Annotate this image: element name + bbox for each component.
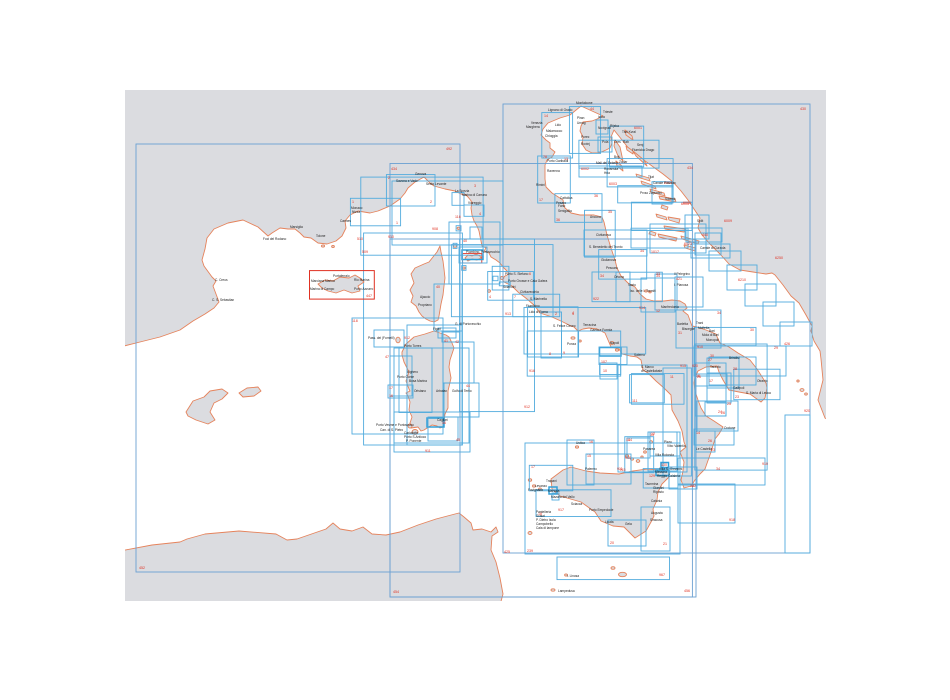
svg-text:6006: 6006 [683, 201, 691, 205]
svg-text:34: 34 [717, 311, 721, 315]
svg-text:3: 3 [474, 184, 476, 188]
svg-text:13: 13 [650, 433, 654, 437]
svg-text:Sciacca: Sciacca [571, 502, 582, 506]
svg-text:Porec: Porec [581, 135, 590, 139]
svg-text:Lignano di Grado: Lignano di Grado [548, 108, 573, 112]
svg-text:6002: 6002 [581, 167, 589, 171]
svg-text:Fiumicka Drago: Fiumicka Drago [632, 148, 655, 152]
svg-text:10: 10 [603, 369, 607, 373]
svg-text:920: 920 [804, 409, 810, 413]
svg-text:11: 11 [670, 375, 674, 379]
svg-text:Canale Pasman: Canale Pasman [653, 181, 676, 185]
svg-text:26: 26 [708, 439, 712, 443]
svg-text:Mali del Sebeto: Mali del Sebeto [596, 161, 618, 165]
svg-text:Izola: Izola [598, 115, 605, 119]
svg-text:910: 910 [388, 235, 394, 239]
svg-text:40: 40 [436, 285, 440, 289]
svg-text:492: 492 [446, 147, 452, 151]
svg-text:Canale di Curzola: Canale di Curzola [700, 246, 726, 250]
svg-text:36: 36 [556, 218, 560, 222]
svg-text:Marina di Campo: Marina di Campo [310, 287, 334, 291]
svg-text:23: 23 [735, 395, 739, 399]
svg-text:Sesto Levante: Sesto Levante [426, 182, 447, 186]
svg-text:510: 510 [357, 237, 363, 241]
svg-text:Foci del Rodano: Foci del Rodano [263, 237, 286, 241]
svg-text:44: 44 [590, 107, 594, 111]
svg-text:I. Pianosa: I. Pianosa [674, 283, 688, 287]
svg-text:20: 20 [610, 541, 614, 545]
svg-text:Cala di lampone: Cala di lampone [536, 526, 559, 530]
svg-text:Portoferraio: Portoferraio [333, 274, 350, 278]
svg-text:47: 47 [385, 355, 389, 359]
svg-text:Golfo di Tertio: Golfo di Tertio [452, 389, 472, 393]
svg-text:26: 26 [697, 375, 701, 379]
svg-text:27: 27 [708, 358, 712, 362]
svg-text:Palermo: Palermo [585, 467, 597, 471]
svg-text:Split: Split [697, 219, 703, 223]
svg-text:452: 452 [139, 566, 145, 570]
svg-text:Pass. dei (Fornelli): Pass. dei (Fornelli) [368, 336, 395, 340]
svg-text:Tolone: Tolone [316, 234, 326, 238]
svg-text:17: 17 [531, 465, 535, 469]
svg-text:17: 17 [539, 198, 543, 202]
svg-text:Bolj: Bolj [614, 155, 620, 159]
svg-text:41: 41 [444, 339, 448, 343]
svg-text:116: 116 [455, 215, 461, 219]
svg-text:Malamocco: Malamocco [546, 129, 563, 133]
svg-text:Sibenik: Sibenik [665, 197, 676, 201]
svg-text:Taranto: Taranto [710, 365, 721, 369]
svg-text:911: 911 [425, 449, 431, 453]
svg-text:908: 908 [432, 227, 438, 231]
svg-text:Lido: Lido [555, 123, 561, 127]
svg-text:14: 14 [544, 114, 548, 118]
svg-text:S. Benedetto del Tronto: S. Benedetto del Tronto [589, 245, 623, 249]
svg-text:910: 910 [697, 345, 703, 349]
svg-text:Riposto: Riposto [653, 490, 664, 494]
svg-text:34: 34 [656, 274, 660, 278]
svg-text:Porto Grosse e Cala Galera: Porto Grosse e Cala Galera [508, 279, 548, 283]
svg-text:Cattolica: Cattolica [560, 196, 573, 200]
svg-text:S. Maria di Leuca: S. Maria di Leuca [746, 391, 771, 395]
svg-text:Ancona: Ancona [590, 215, 601, 219]
svg-text:425: 425 [504, 550, 510, 554]
svg-text:Genova: Genova [415, 172, 426, 176]
svg-text:Zadar: Zadar [619, 160, 628, 164]
svg-text:I. Linosa: I. Linosa [567, 574, 579, 578]
svg-text:Ustica: Ustica [576, 441, 585, 445]
svg-text:Fiumicino: Fiumicino [526, 304, 540, 308]
svg-text:Civitanova: Civitanova [596, 233, 611, 237]
svg-text:910: 910 [625, 456, 631, 460]
svg-text:Piombino, Portovecchio: Piombino, Portovecchio [466, 250, 500, 254]
svg-text:239: 239 [527, 549, 533, 553]
svg-text:Vibo Valentia: Vibo Valentia [667, 444, 686, 448]
svg-text:Terracina: Terracina [583, 323, 596, 327]
svg-text:Trieste: Trieste [603, 110, 613, 114]
svg-text:Figari: Figari [433, 327, 441, 331]
svg-text:111: 111 [632, 399, 637, 403]
svg-text:922: 922 [593, 297, 599, 301]
svg-text:421: 421 [676, 277, 682, 281]
svg-text:430: 430 [800, 107, 806, 111]
svg-text:Viareggio: Viareggio [468, 201, 482, 205]
svg-text:17: 17 [709, 379, 713, 383]
svg-text:16: 16 [389, 394, 393, 398]
svg-text:2: 2 [555, 312, 557, 316]
svg-text:Alghero: Alghero [407, 370, 418, 374]
svg-text:Civitavecchia: Civitavecchia [520, 290, 539, 294]
svg-text:Salerno: Salerno [634, 353, 645, 357]
svg-text:8: 8 [549, 352, 551, 356]
svg-text:34: 34 [640, 249, 644, 253]
svg-text:Tijat: Tijat [648, 175, 654, 179]
svg-text:Cannes: Cannes [340, 219, 351, 223]
svg-text:Hria: Hria [604, 171, 610, 175]
svg-text:Monopoli: Monopoli [706, 338, 719, 342]
svg-text:910: 910 [762, 462, 768, 466]
svg-text:12: 12 [656, 309, 660, 313]
svg-text:118: 118 [352, 319, 358, 323]
svg-text:914: 914 [639, 306, 645, 310]
svg-text:Marina di Carrara: Marina di Carrara [462, 193, 487, 197]
svg-text:Reggio Calabria: Reggio Calabria [657, 474, 680, 478]
svg-text:Marsala: Marsala [548, 489, 560, 493]
svg-text:Rab: Rab [623, 140, 629, 144]
svg-text:Ajaccio: Ajaccio [420, 295, 431, 299]
svg-text:917: 917 [558, 508, 564, 512]
svg-text:26: 26 [721, 411, 725, 415]
svg-text:967: 967 [659, 573, 665, 577]
svg-text:29: 29 [774, 346, 778, 350]
svg-text:1: 1 [396, 221, 398, 225]
svg-text:Gallipoli: Gallipoli [733, 386, 745, 390]
svg-text:4: 4 [572, 312, 574, 316]
svg-text:6009: 6009 [724, 219, 732, 223]
svg-text:Molfetta: Molfetta [698, 326, 710, 330]
svg-text:Siracusa: Siracusa [650, 518, 663, 522]
svg-text:918: 918 [729, 518, 735, 522]
svg-text:28: 28 [733, 367, 737, 371]
svg-text:44: 44 [466, 384, 470, 388]
svg-text:Marsiglia: Marsiglia [290, 225, 303, 229]
svg-text:Rovinj: Rovinj [581, 142, 590, 146]
svg-text:Can. di S. Pietro: Can. di S. Pietro [380, 428, 403, 432]
svg-text:Ortona: Ortona [614, 275, 624, 279]
svg-text:Monfalcone: Monfalcone [576, 101, 593, 105]
svg-text:Giulianova: Giulianova [601, 258, 616, 262]
svg-text:Favignana: Favignana [528, 488, 543, 492]
svg-text:Porto Azzurro: Porto Azzurro [354, 287, 374, 291]
svg-text:456: 456 [684, 589, 690, 593]
svg-text:Il Pelegrino: Il Pelegrino [674, 272, 690, 276]
svg-text:129: 129 [649, 474, 655, 478]
svg-text:912: 912 [524, 405, 530, 409]
svg-text:21: 21 [663, 542, 667, 546]
svg-text:107: 107 [601, 360, 607, 364]
svg-text:Umag: Umag [577, 121, 586, 125]
svg-text:Cagliari: Cagliari [437, 418, 448, 422]
svg-text:Pescara: Pescara [606, 266, 618, 270]
svg-text:31: 31 [678, 331, 682, 335]
svg-text:Barletta: Barletta [677, 322, 688, 326]
svg-text:509: 509 [362, 250, 368, 254]
svg-text:Oristano: Oristano [414, 389, 426, 393]
svg-text:Porto Vesme e Portoscuso: Porto Vesme e Portoscuso [376, 423, 414, 427]
svg-text:P. Ponente: P. Ponente [406, 439, 422, 443]
svg-text:Rio Marina: Rio Marina [354, 278, 370, 282]
svg-text:6023: 6023 [684, 242, 692, 246]
svg-text:S. Felice Circeo: S. Felice Circeo [553, 324, 576, 328]
svg-text:Tisti Kvral: Tisti Kvral [622, 130, 636, 134]
svg-text:Trani: Trani [696, 321, 703, 325]
svg-text:Bosa Marina: Bosa Marina [409, 379, 427, 383]
svg-text:42: 42 [455, 340, 459, 344]
svg-text:25: 25 [727, 402, 731, 406]
svg-text:454: 454 [393, 590, 399, 594]
svg-text:426: 426 [784, 342, 790, 346]
svg-text:Marghera: Marghera [526, 125, 540, 129]
svg-text:Lampedusa: Lampedusa [558, 589, 575, 593]
svg-text:Ponza: Ponza [567, 342, 576, 346]
svg-text:Vasto: Vasto [628, 283, 636, 287]
svg-text:Gaeta e Formia: Gaeta e Formia [590, 328, 612, 332]
svg-text:Le Castella: Le Castella [696, 447, 712, 451]
svg-text:Crotone: Crotone [724, 426, 736, 430]
svg-text:6003: 6003 [609, 182, 617, 186]
svg-text:Porto S. Stefano: Porto S. Stefano [505, 272, 529, 276]
svg-text:14: 14 [696, 431, 700, 435]
svg-text:Rijeka: Rijeka [610, 124, 619, 128]
svg-text:Isc. delle I. Tremiti: Isc. delle I. Tremiti [630, 289, 656, 293]
svg-text:Mazara del Vallo: Mazara del Vallo [551, 495, 575, 499]
svg-text:40: 40 [463, 239, 467, 243]
svg-text:Trapani: Trapani [546, 479, 557, 483]
svg-text:Rimini: Rimini [536, 183, 545, 187]
svg-text:34: 34 [716, 467, 720, 471]
svg-text:Villa Rotonda: Villa Rotonda [655, 453, 674, 457]
svg-text:Savona e Vado: Savona e Vado [396, 179, 418, 183]
svg-text:Fano: Fano [558, 204, 565, 208]
svg-text:434: 434 [687, 166, 693, 170]
svg-text:6: 6 [529, 272, 531, 276]
svg-text:Manfredonia: Manfredonia [661, 305, 679, 309]
svg-text:Prvso Zapuntel: Prvso Zapuntel [640, 191, 662, 195]
svg-text:Ravenna: Ravenna [547, 169, 560, 173]
svg-text:15: 15 [587, 454, 591, 458]
svg-text:Senj: Senj [637, 143, 644, 147]
svg-text:911: 911 [617, 467, 623, 471]
svg-text:S. Marinella: S. Marinella [530, 297, 547, 301]
svg-text:Lido di Roma: Lido di Roma [529, 310, 548, 314]
svg-text:Nizza: Nizza [352, 210, 360, 214]
svg-text:G. di Portovecchio: G. di Portovecchio [455, 322, 481, 326]
svg-text:45: 45 [456, 438, 460, 442]
svg-text:2: 2 [430, 200, 432, 204]
svg-text:Catania: Catania [651, 499, 662, 503]
svg-text:Propriano: Propriano [418, 303, 432, 307]
svg-text:C. S. Sebastian: C. S. Sebastian [212, 298, 234, 302]
svg-text:Brindisi: Brindisi [729, 356, 740, 360]
svg-text:9: 9 [563, 351, 565, 355]
svg-text:4: 4 [489, 295, 491, 299]
svg-text:1017: 1017 [651, 250, 659, 254]
svg-text:440: 440 [702, 233, 708, 237]
svg-text:Porto Torres: Porto Torres [404, 344, 422, 348]
svg-text:Senigallia: Senigallia [558, 209, 572, 213]
svg-text:6210: 6210 [738, 278, 746, 282]
svg-text:2: 2 [388, 176, 390, 180]
svg-text:Panarea: Panarea [643, 447, 655, 451]
svg-text:Mola di Bari: Mola di Bari [702, 333, 719, 337]
svg-text:16: 16 [589, 440, 593, 444]
svg-text:Cres: Cres [614, 140, 621, 144]
svg-text:Bisceglie: Bisceglie [682, 327, 695, 331]
svg-text:920: 920 [692, 364, 698, 368]
svg-text:434: 434 [391, 167, 397, 171]
svg-text:912: 912 [404, 336, 410, 340]
svg-text:Napoli: Napoli [610, 341, 619, 345]
svg-text:Pola: Pola [602, 140, 609, 144]
svg-text:Porto Empedocle: Porto Empedocle [589, 508, 614, 512]
svg-text:36: 36 [594, 194, 598, 198]
svg-text:Scianutri: Scianutri [503, 285, 516, 289]
svg-text:17: 17 [389, 386, 393, 390]
svg-text:Arbatax: Arbatax [436, 389, 447, 393]
svg-text:Messina: Messina [655, 470, 667, 474]
svg-text:Gela: Gela [625, 522, 632, 526]
svg-text:447: 447 [366, 294, 372, 298]
svg-text:34: 34 [690, 484, 694, 488]
svg-text:913: 913 [505, 312, 511, 316]
svg-text:34: 34 [600, 274, 604, 278]
svg-text:Porto Garibaldi: Porto Garibaldi [547, 159, 569, 163]
svg-text:14: 14 [626, 438, 630, 442]
svg-text:30: 30 [750, 328, 754, 332]
svg-text:6250: 6250 [775, 256, 783, 260]
svg-text:di Castellabate: di Castellabate [641, 369, 662, 373]
svg-text:C. Creus: C. Creus [215, 278, 228, 282]
svg-text:4: 4 [479, 212, 481, 216]
svg-text:35: 35 [608, 210, 612, 214]
svg-text:Licata: Licata [605, 520, 614, 524]
svg-text:916: 916 [529, 369, 535, 373]
svg-text:Piran: Piran [577, 116, 585, 120]
svg-text:915: 915 [680, 364, 686, 368]
svg-text:Chioggia: Chioggia [545, 134, 558, 138]
svg-text:Marciana Marina: Marciana Marina [311, 279, 335, 283]
svg-text:7: 7 [514, 295, 516, 299]
svg-text:Otranto: Otranto [757, 379, 768, 383]
svg-text:1: 1 [352, 200, 354, 204]
svg-text:Augusta: Augusta [651, 511, 663, 515]
